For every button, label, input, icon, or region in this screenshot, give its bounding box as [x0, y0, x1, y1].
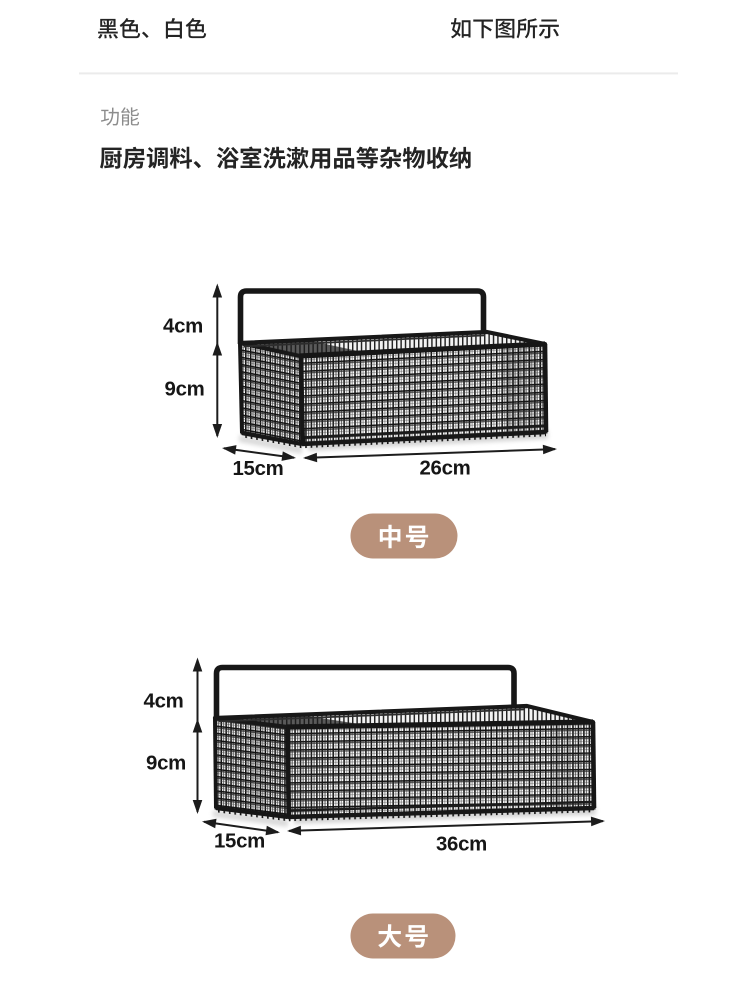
svg-text:15cm: 15cm [214, 831, 265, 853]
svg-text:9cm: 9cm [165, 379, 205, 401]
svg-text:9cm: 9cm [146, 753, 186, 775]
svg-text:26cm: 26cm [420, 458, 471, 480]
svg-text:4cm: 4cm [163, 316, 203, 338]
svg-text:15cm: 15cm [233, 458, 284, 480]
svg-text:4cm: 4cm [144, 691, 184, 713]
svg-text:36cm: 36cm [436, 834, 487, 856]
